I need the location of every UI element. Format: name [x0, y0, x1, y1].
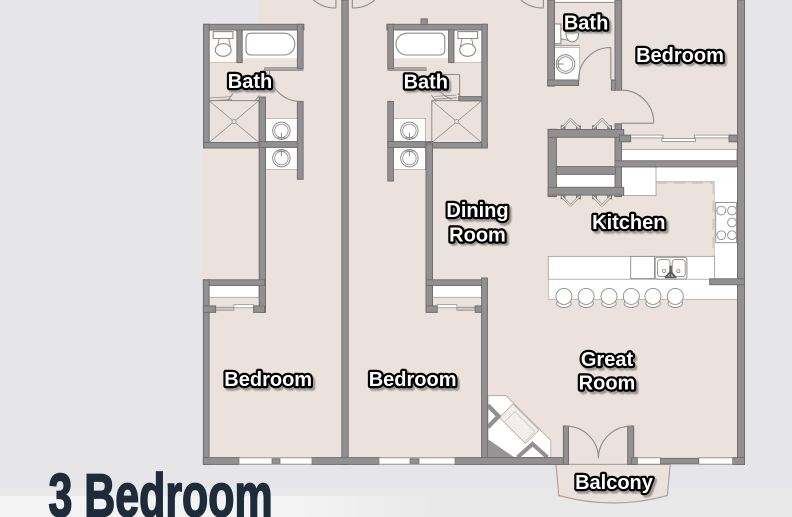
svg-text:Great: Great	[581, 349, 634, 371]
svg-text:Kitchen: Kitchen	[592, 212, 665, 234]
svg-text:Dining: Dining	[446, 200, 508, 222]
svg-text:Balcony: Balcony	[575, 472, 654, 494]
svg-text:Bedroom: Bedroom	[224, 369, 312, 391]
svg-text:Room: Room	[449, 224, 506, 246]
svg-text:Bath: Bath	[228, 71, 272, 93]
svg-text:Bath: Bath	[404, 71, 448, 93]
svg-text:Bedroom: Bedroom	[369, 369, 457, 391]
svg-text:3 Bedroom: 3 Bedroom	[49, 462, 273, 517]
svg-text:Bedroom: Bedroom	[636, 45, 724, 67]
svg-text:Room: Room	[579, 373, 636, 395]
svg-text:Bath: Bath	[564, 12, 608, 34]
